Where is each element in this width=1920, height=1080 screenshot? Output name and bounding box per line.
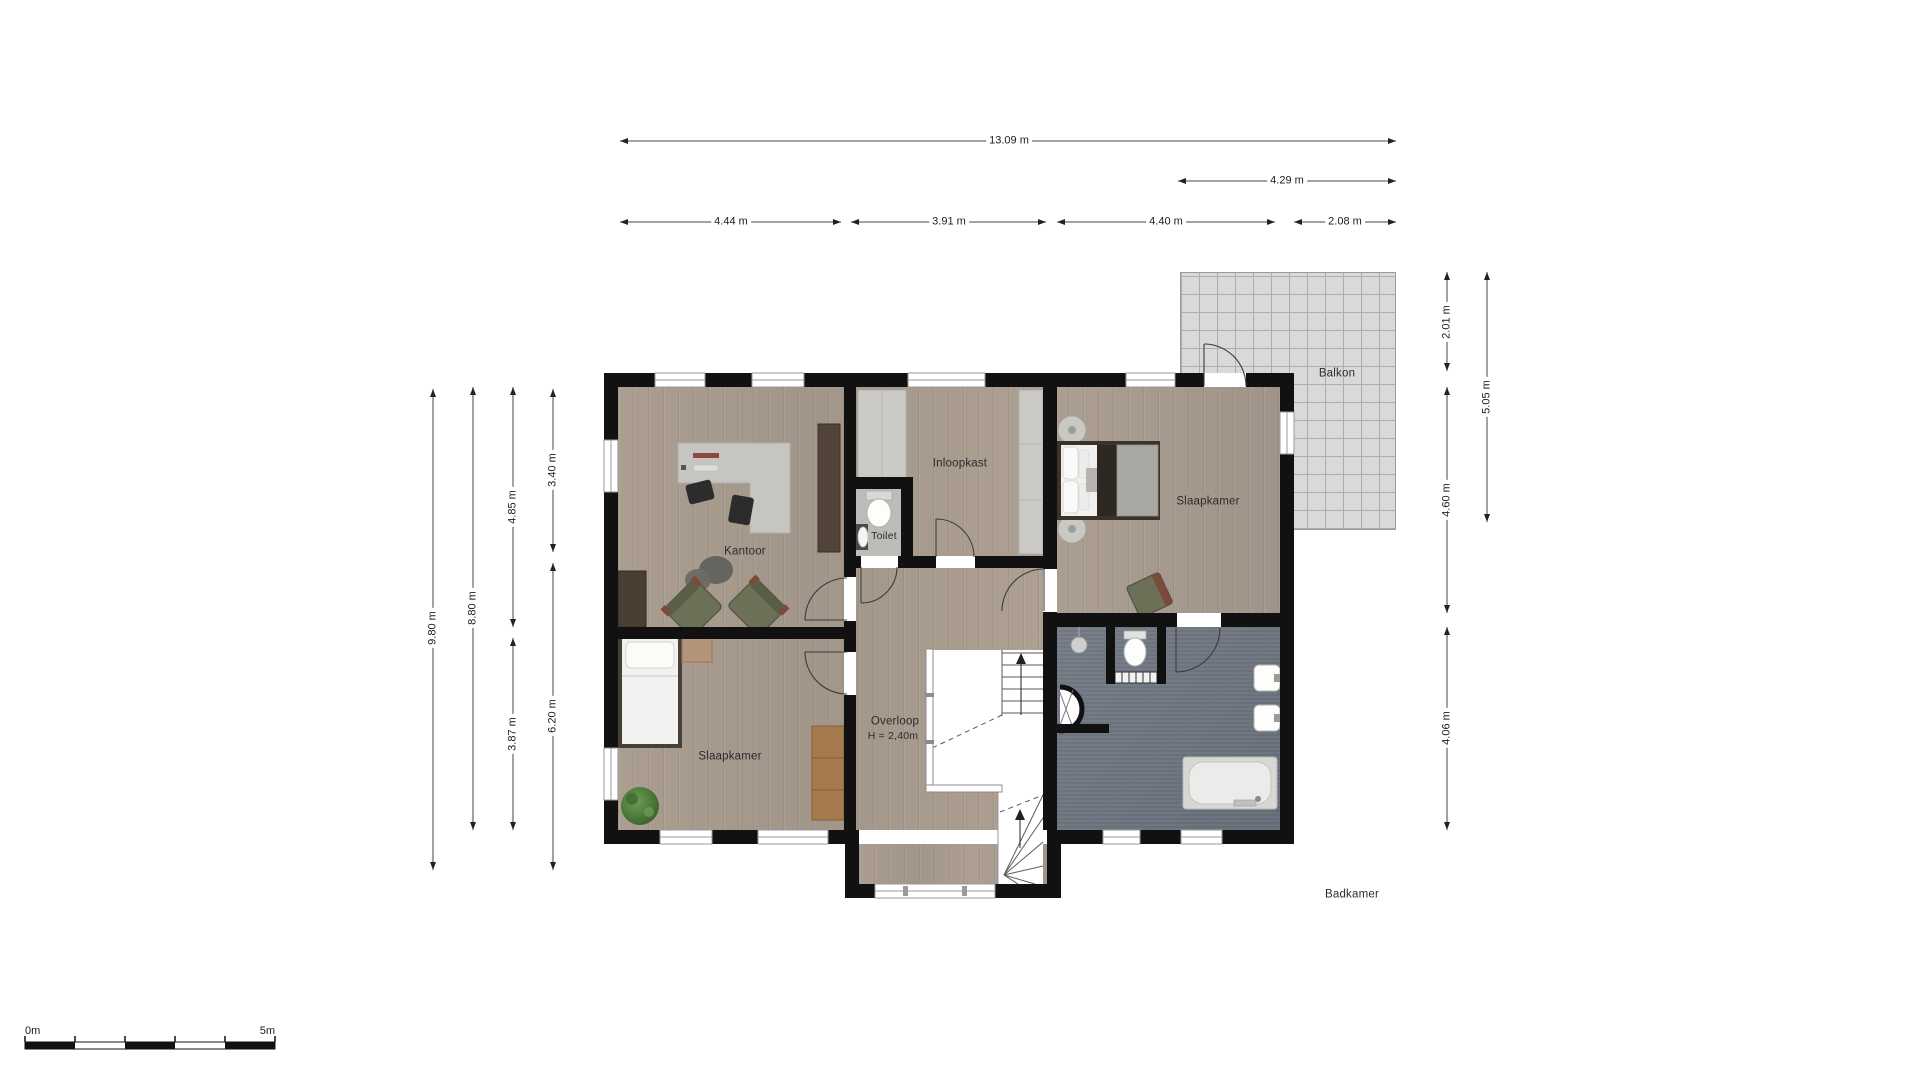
room-label-badkamer: Badkamer bbox=[1325, 889, 1379, 902]
dimension-label-left-inner: 8.80 m bbox=[468, 588, 479, 628]
scale-label-end: 5m bbox=[260, 1026, 275, 1037]
bathroom-fixtures bbox=[1059, 627, 1280, 809]
dimension-label-right-slaapkamer: 4.60 m bbox=[1442, 480, 1453, 520]
dimension-label-top-seg3: 4.40 m bbox=[1146, 217, 1186, 228]
dimension-label-left-onder: 6.20 m bbox=[548, 696, 559, 736]
room-label-inloopkast: Inloopkast bbox=[933, 458, 987, 471]
room-label-toilet: Toilet bbox=[871, 531, 897, 543]
room-label-kantoor: Kantoor bbox=[724, 546, 766, 559]
dimension-label-left-boven: 3.40 m bbox=[548, 450, 559, 490]
dimension-lines bbox=[433, 141, 1487, 870]
dimension-label-top-total: 13.09 m bbox=[986, 136, 1032, 147]
room-label-overloop-hoogte: H = 2,40m bbox=[868, 731, 919, 743]
scale-bar bbox=[25, 1036, 275, 1049]
second-bedroom-furniture bbox=[620, 634, 844, 825]
master-bedroom-furniture bbox=[1057, 416, 1173, 618]
plan-drawing bbox=[0, 0, 1920, 1080]
staircase bbox=[932, 650, 1043, 884]
room-label-slaapkamer-tweede: Slaapkamer bbox=[698, 751, 761, 764]
dimension-label-top-seg4: 2.08 m bbox=[1325, 217, 1365, 228]
scale-label-start: 0m bbox=[25, 1026, 40, 1037]
dimension-label-left-slaapkamer: 3.87 m bbox=[508, 714, 519, 754]
dimension-label-top-seg2: 3.91 m bbox=[929, 217, 969, 228]
room-label-slaapkamer-master: Slaapkamer bbox=[1176, 496, 1239, 509]
room-label-overloop: Overloop bbox=[871, 716, 919, 729]
dimension-label-right-badkamer: 4.06 m bbox=[1442, 708, 1453, 748]
dimension-label-right-balkon-totaal: 5.05 m bbox=[1482, 377, 1493, 417]
room-label-balkon: Balkon bbox=[1319, 368, 1355, 381]
dimension-label-left-total: 9.80 m bbox=[428, 608, 439, 648]
dimension-label-left-kantoor: 4.85 m bbox=[508, 487, 519, 527]
dimension-label-top-balkon: 4.29 m bbox=[1267, 176, 1307, 187]
dimension-label-top-seg1: 4.44 m bbox=[711, 217, 751, 228]
floor-plan: Kantoor Toilet Inloopkast Slaapkamer Sla… bbox=[0, 0, 1920, 1080]
dimension-label-right-balkon-boven: 2.01 m bbox=[1442, 302, 1453, 342]
